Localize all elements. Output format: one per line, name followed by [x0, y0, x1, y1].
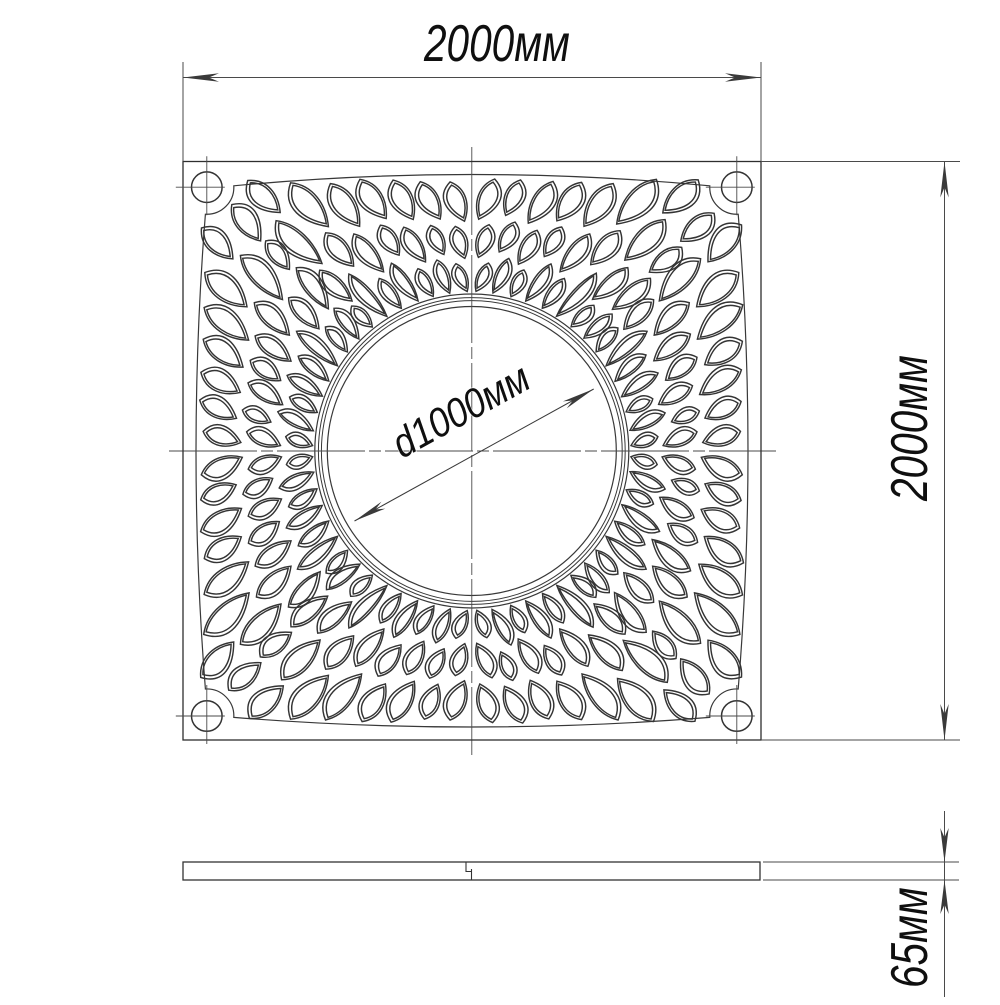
svg-text:2000мм: 2000мм	[880, 355, 938, 502]
svg-text:65мм: 65мм	[880, 887, 938, 988]
svg-text:2000мм: 2000мм	[423, 14, 570, 72]
